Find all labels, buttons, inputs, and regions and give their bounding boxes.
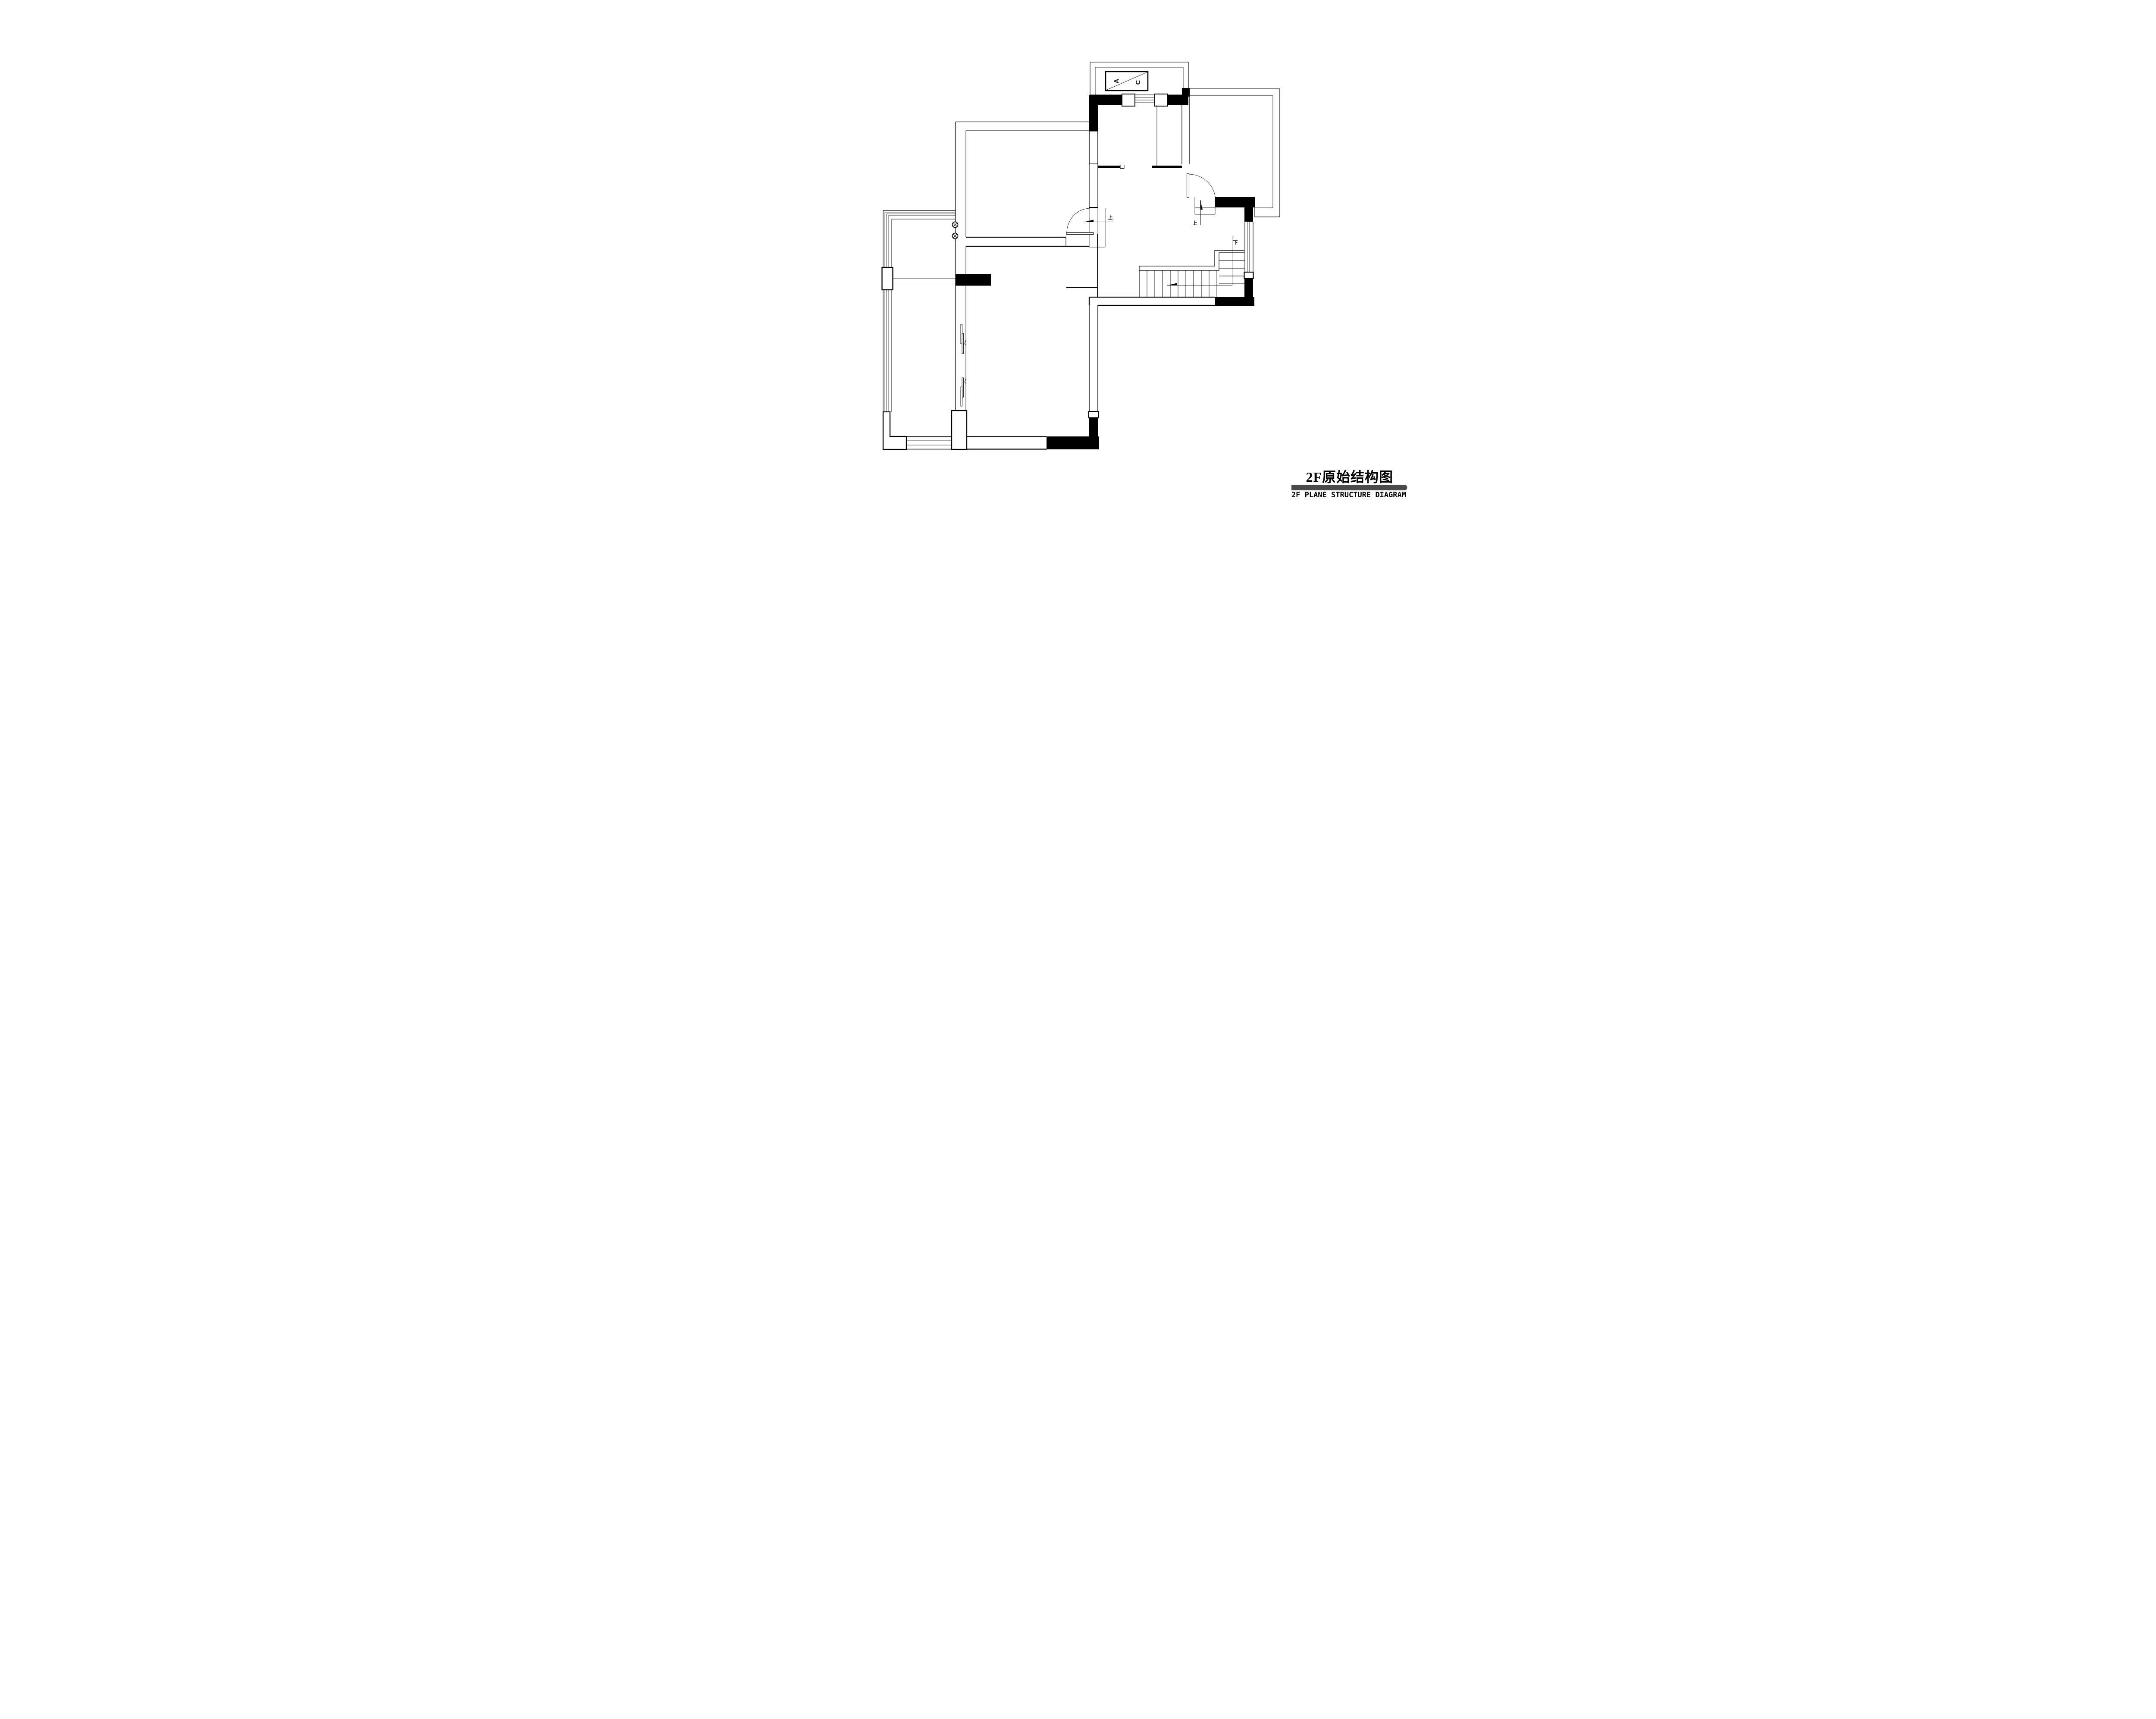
room-inner-wall <box>1190 96 1273 208</box>
direction-arrowhead <box>1200 200 1203 210</box>
bottom-room-east-wall <box>1088 305 1098 436</box>
wall-solid-segment <box>1244 279 1253 297</box>
drawing-sheet: A C <box>745 0 1411 500</box>
window-jamb <box>1244 272 1253 279</box>
floor-plan: A C <box>745 0 1411 500</box>
wall-solid-segment <box>1244 207 1253 222</box>
wall-stub <box>1152 166 1182 168</box>
ac-label-a: A <box>1113 78 1120 83</box>
facade-line <box>885 212 956 412</box>
staircase <box>1139 251 1244 298</box>
west-window-box <box>882 267 893 290</box>
wall-solid-segment <box>1047 436 1099 449</box>
door-leaf <box>1187 173 1189 198</box>
drain-symbols <box>952 222 958 239</box>
stair-treads-lower-run <box>1147 270 1217 297</box>
stair-up-indicator-left: 上 <box>1084 214 1114 222</box>
sheet-title-cn: 2F原始结构图 <box>1306 469 1393 485</box>
door-swing-arc <box>1189 174 1216 200</box>
window-jamb <box>1122 94 1135 106</box>
t-pillar <box>952 411 967 449</box>
stair-up-indicator-right: 上 <box>1192 200 1203 226</box>
column <box>1182 88 1190 97</box>
stair-top-landing <box>1195 197 1215 214</box>
title-divider-bar <box>1291 485 1407 490</box>
column <box>956 274 991 286</box>
wall-solid-segment <box>1089 95 1098 131</box>
stair-hall-window-wall <box>1245 222 1253 272</box>
wall-line-thick <box>1089 297 1215 305</box>
wall-box <box>1088 411 1098 418</box>
title-block: 2F原始结构图 2F PLANE STRUCTURE DIAGRAM <box>1291 469 1407 499</box>
door-leaf <box>961 387 962 406</box>
down-label: 下 <box>1233 240 1238 245</box>
wall-solid-segment <box>1215 197 1255 207</box>
ac-balcony <box>1090 62 1188 95</box>
wall-hollow-segment <box>1089 131 1098 164</box>
door-leaf <box>1066 233 1094 235</box>
wall-solid-segment <box>1089 417 1098 436</box>
wall-stub-end <box>1120 165 1124 169</box>
stair-down-indicator: 下 <box>1167 236 1238 285</box>
wall-solid-segment <box>1215 297 1254 306</box>
up-label-left: 上 <box>1108 214 1112 220</box>
facade-inner-line <box>892 219 956 412</box>
up-label-right: 上 <box>1192 220 1197 226</box>
south-facade <box>883 411 1047 449</box>
facade-line <box>888 216 956 412</box>
ac-label-c: C <box>1134 80 1142 85</box>
wall-end-cap <box>1089 207 1098 208</box>
corner-pillar <box>883 412 906 449</box>
door-swing-arc <box>1067 208 1090 232</box>
stair-treads-upper-run <box>1219 260 1244 284</box>
balcony-outer-wall <box>1090 62 1188 95</box>
hall-left-wall <box>1066 131 1105 297</box>
sheet-title-en: 2F PLANE STRUCTURE DIAGRAM <box>1291 491 1406 499</box>
sliding-door-panels <box>961 324 966 406</box>
wall-stub <box>1098 166 1120 168</box>
window-jamb <box>1155 94 1168 106</box>
direction-line <box>1167 236 1232 285</box>
facade-line <box>887 214 956 412</box>
north-wall-band <box>1090 94 1188 106</box>
facade-line <box>883 210 956 412</box>
left-room <box>883 210 956 412</box>
stair-stringer-inner <box>1139 253 1244 270</box>
door-leaf <box>962 333 963 354</box>
